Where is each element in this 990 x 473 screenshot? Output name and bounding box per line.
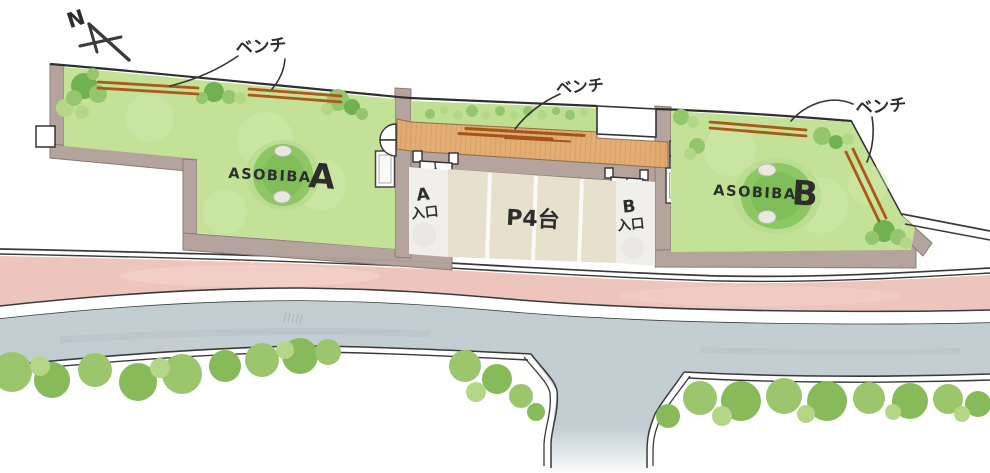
- parcel-b: ASOBIBA B: [671, 109, 990, 252]
- north-arrow-icon: [80, 24, 129, 60]
- entrance-b-word: 入口: [617, 216, 646, 235]
- site-plan-canvas: ASOBIBA A: [0, 0, 990, 473]
- entrance-a: A 入口: [409, 167, 448, 257]
- signboard-a: [376, 151, 395, 187]
- notch-structure: [597, 106, 656, 137]
- north-label: N: [64, 5, 88, 33]
- parking-label: P4台: [506, 205, 561, 234]
- roads: [0, 249, 990, 473]
- asobiba-b-letter: B: [791, 173, 820, 215]
- entrance-b-letter: B: [622, 196, 637, 217]
- bench-label-center: ベンチ: [555, 75, 604, 97]
- wall-a-post: [36, 126, 55, 147]
- bench-label-left: ベンチ: [235, 35, 287, 59]
- asobiba-a-letter: A: [307, 156, 337, 198]
- entrance-a-word: 入口: [411, 204, 440, 223]
- parking-lot: P4台: [448, 169, 616, 263]
- bench-label-right: ベンチ: [855, 95, 907, 119]
- site-plan-drawing: ASOBIBA A: [0, 0, 990, 473]
- hedge-row-right: [656, 378, 990, 428]
- wall-a-right: [395, 88, 411, 258]
- hedge-row-mid: [449, 350, 545, 421]
